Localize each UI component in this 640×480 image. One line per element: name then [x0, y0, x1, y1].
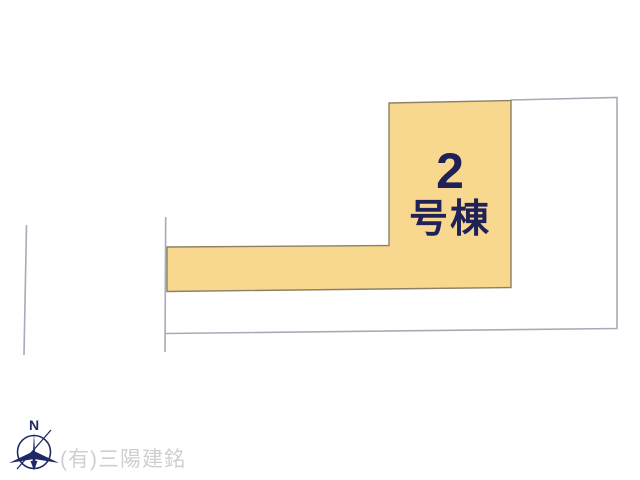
site-west-boundary-line — [165, 217, 166, 352]
left-boundary-line — [24, 225, 27, 355]
company-watermark: (有)三陽建銘 — [60, 443, 186, 473]
site-plan: 2 号棟 N (有)三陽建銘 — [0, 0, 640, 480]
site-plan-drawing — [0, 0, 640, 480]
compass-north-label: N — [24, 417, 44, 433]
compass-north-icon — [9, 430, 59, 471]
lot-polygon-building-2 — [167, 101, 511, 292]
